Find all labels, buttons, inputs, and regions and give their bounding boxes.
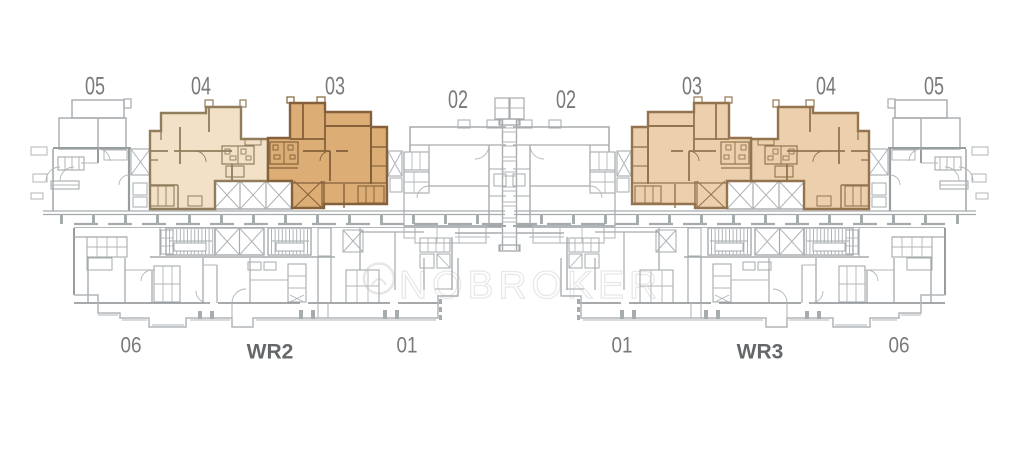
- svg-text:05: 05: [85, 73, 105, 101]
- svg-text:WR3: WR3: [737, 341, 784, 364]
- svg-text:WR2: WR2: [247, 341, 294, 364]
- svg-text:01: 01: [397, 333, 418, 358]
- svg-text:01: 01: [612, 333, 633, 358]
- svg-text:06: 06: [889, 333, 910, 358]
- svg-text:04: 04: [191, 73, 211, 101]
- svg-text:03: 03: [682, 73, 702, 101]
- svg-text:02: 02: [556, 86, 576, 114]
- svg-text:05: 05: [924, 73, 944, 101]
- svg-text:03: 03: [325, 73, 345, 101]
- svg-text:04: 04: [816, 73, 836, 101]
- svg-text:06: 06: [121, 333, 142, 358]
- svg-text:02: 02: [448, 86, 468, 114]
